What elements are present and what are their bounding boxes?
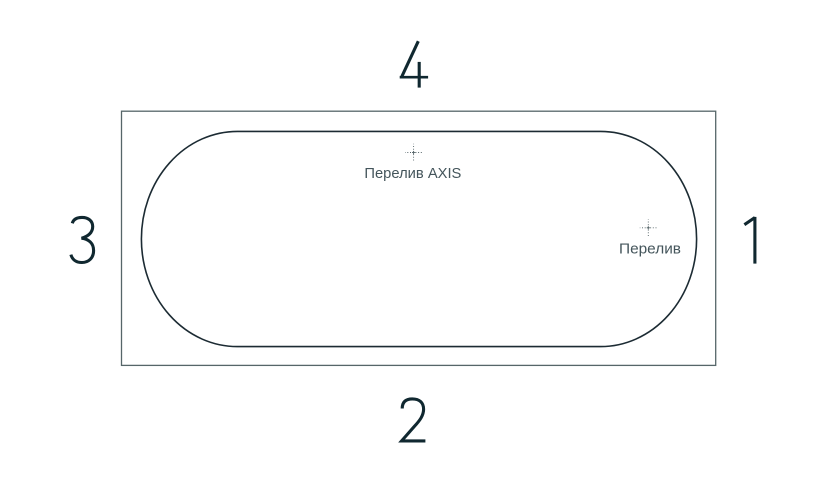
svg-text:Перелив AXIS: Перелив AXIS [364, 165, 461, 182]
svg-text:Перелив: Перелив [619, 240, 681, 257]
